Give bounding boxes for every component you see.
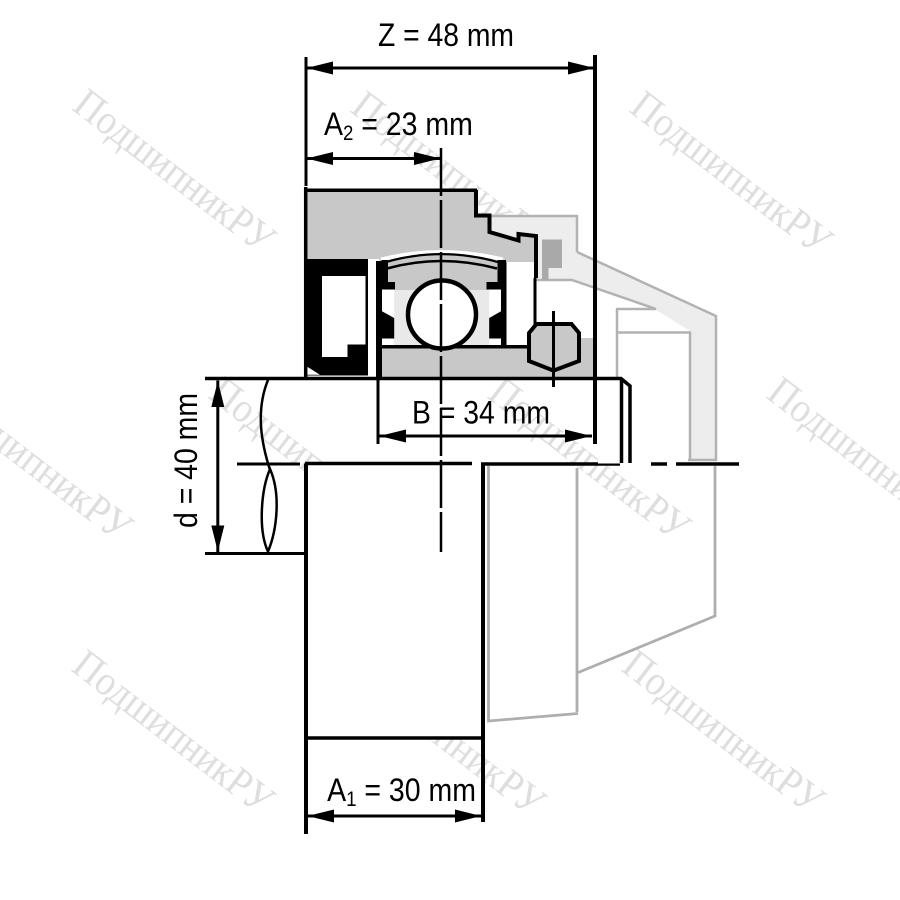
svg-text:B = 34 mm: B = 34 mm xyxy=(412,395,550,431)
svg-text:d = 40 mm: d = 40 mm xyxy=(168,393,204,528)
svg-text:Z = 48 mm: Z = 48 mm xyxy=(378,17,514,53)
